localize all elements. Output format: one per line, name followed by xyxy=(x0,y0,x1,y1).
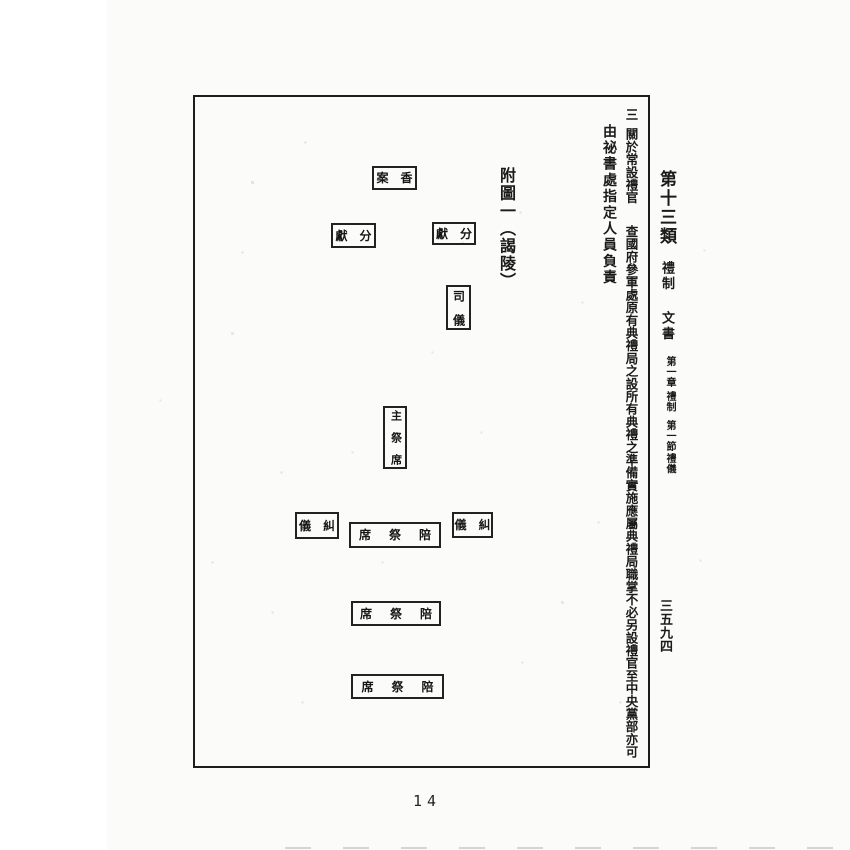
margin-section-title: 禮儀 xyxy=(664,453,674,474)
body-text-column-1: 三關於常設禮官查國府參軍處原有典禮局之設所有典禮之準備實施應屬典禮局職掌不必另設… xyxy=(624,108,637,758)
seat-box-proctor-right: 儀 糾 xyxy=(452,512,493,538)
margin-chapter-label: 第一章 xyxy=(664,356,674,388)
body-text-column-2: 由祕書處指定人員負責 xyxy=(601,124,615,286)
margin-category-title: 第十三類 xyxy=(658,170,675,246)
item-number: 三 xyxy=(624,108,638,121)
seat-box-incense-table: 案 香 xyxy=(372,166,417,190)
text-gap xyxy=(630,121,631,128)
margin-section-label: 第一節 xyxy=(664,420,674,452)
seat-box-proctor-left: 儀 糾 xyxy=(295,512,339,539)
scan-left-margin xyxy=(0,0,107,850)
seat-box-master-of-ceremonies: 司 儀 xyxy=(446,285,471,330)
seat-box-offering-left: 獻 分 xyxy=(331,223,376,248)
seat-box-co-officiant-2: 席 祭 陪 xyxy=(351,601,441,626)
seat-box-co-officiant-3: 席 祭 陪 xyxy=(351,674,444,699)
margin-doc-type: 文書 xyxy=(661,311,674,342)
seat-box-chief-officiant: 主 祭 席 xyxy=(383,406,407,469)
margin-page-number-cn: 三五九四 xyxy=(659,599,672,653)
page-number: 14 xyxy=(413,792,441,810)
margin-chapter-title: 禮制 xyxy=(664,391,674,412)
item-heading: 關於常設禮官 xyxy=(624,128,638,204)
margin-subject-title: 禮制 xyxy=(661,261,674,292)
page-border-frame xyxy=(193,95,650,768)
item-body-text: 查國府參軍處原有典禮局之設所有典禮之準備實施應屬典禮局職掌不必另設禮官至中央黨部… xyxy=(624,225,638,758)
figure-caption: 附圖一（謁陵） xyxy=(497,167,513,290)
scanner-edge-artifact xyxy=(285,847,850,849)
scanned-book-page: 三關於常設禮官查國府參軍處原有典禮局之設所有典禮之準備實施應屬典禮局職掌不必另設… xyxy=(0,0,850,850)
text-gap xyxy=(630,204,631,225)
scan-speckles xyxy=(0,0,1,1)
seat-box-co-officiant-1: 席 祭 陪 xyxy=(349,522,441,548)
seat-box-offering-right: 獻 分 xyxy=(432,222,476,245)
